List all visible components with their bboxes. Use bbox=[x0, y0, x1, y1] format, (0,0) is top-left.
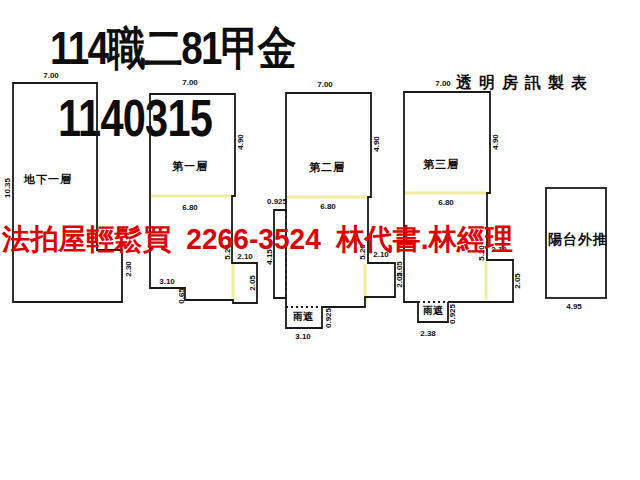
f2-dim-canopy-h: 0.925 bbox=[324, 308, 333, 328]
floorplan-sheet: { "title": { "line1": "114職二81甲金", "line… bbox=[0, 0, 640, 480]
f3-dim-right: 4.90 bbox=[491, 134, 500, 150]
f2-outline bbox=[286, 93, 395, 307]
ad-banner: 法拍屋輕鬆買2266-3524林代書.林經理 bbox=[2, 220, 513, 260]
balcony-name: 陽台外推 bbox=[548, 231, 608, 249]
basement-dim-top: 7.00 bbox=[43, 71, 59, 80]
f2-dim-top: 7.00 bbox=[317, 80, 333, 89]
ad-text-right: 林代書.林經理 bbox=[336, 223, 513, 255]
ad-phone: 2266-3524 bbox=[186, 223, 321, 255]
basement-dim-right: 2.30 bbox=[124, 261, 133, 277]
f3-dim-canopy-h: 0.925 bbox=[448, 304, 457, 324]
f1-dim-top: 7.00 bbox=[182, 78, 198, 87]
f1-outline bbox=[150, 94, 257, 303]
f1-dim-ext-h: 2.05 bbox=[248, 275, 257, 291]
f1-dim-step: 0.65 bbox=[177, 288, 186, 304]
f1-dim-right: 4.90 bbox=[236, 134, 245, 150]
f3-name: 第三層 bbox=[423, 157, 459, 172]
basement-dim-left: 10.35 bbox=[3, 178, 12, 198]
f3-dim-ext-h: 2.05 bbox=[513, 273, 522, 289]
f2-dim-right: 4.90 bbox=[372, 136, 381, 152]
f2-name: 第二層 bbox=[309, 160, 345, 175]
f1-name: 第一層 bbox=[172, 159, 208, 174]
f3-canopy-label: 雨遮 bbox=[423, 304, 443, 318]
f2-dim-strip-w: 0.925 bbox=[267, 197, 287, 206]
f3-dim-inner: 6.80 bbox=[438, 198, 454, 207]
f2-dim-canopy-w: 3.10 bbox=[295, 332, 311, 341]
f2-canopy-label: 雨遮 bbox=[293, 310, 313, 324]
basement-outline bbox=[13, 83, 122, 302]
ad-text-left: 法拍屋輕鬆買 bbox=[2, 223, 171, 255]
balcony-dim-bottom: 4.95 bbox=[566, 302, 582, 311]
f3-dim-canopy-w: 2.38 bbox=[420, 329, 436, 338]
f1-dim-bottom: 3.10 bbox=[159, 277, 175, 286]
f3-dim-left-h: 2.05 bbox=[395, 261, 404, 277]
basement-name: 地下一層 bbox=[24, 172, 72, 187]
f1-dim-inner: 6.80 bbox=[182, 203, 198, 212]
f3-outline bbox=[404, 92, 513, 302]
f3-dim-top: 7.00 bbox=[435, 79, 451, 88]
f2-dim-inner: 6.80 bbox=[320, 202, 336, 211]
